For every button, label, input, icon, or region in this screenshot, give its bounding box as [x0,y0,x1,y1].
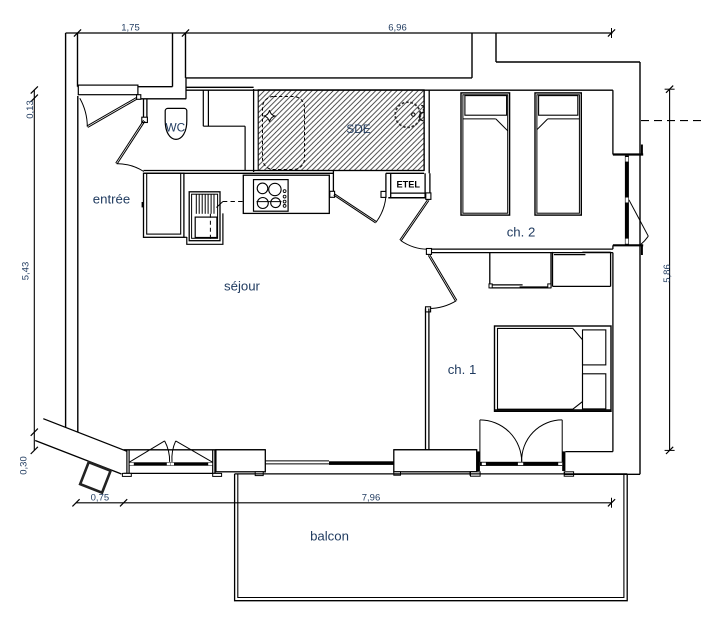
svg-text:entrée: entrée [93,192,130,207]
svg-text:0,30: 0,30 [19,456,30,475]
svg-text:ch. 2: ch. 2 [507,225,536,240]
svg-text:5,43: 5,43 [21,262,32,281]
svg-text:0,13: 0,13 [25,100,36,119]
svg-text:SDE: SDE [346,122,370,136]
svg-text:7,96: 7,96 [362,492,381,503]
svg-text:0,75: 0,75 [91,492,110,503]
svg-text:5,86: 5,86 [662,264,673,283]
svg-text:ETEL: ETEL [396,180,420,190]
svg-text:6,96: 6,96 [388,23,407,34]
svg-text:1,75: 1,75 [121,23,140,34]
svg-text:WC: WC [165,121,185,135]
svg-text:balcon: balcon [310,529,349,544]
svg-text:séjour: séjour [224,279,261,294]
svg-text:ch. 1: ch. 1 [448,362,477,377]
